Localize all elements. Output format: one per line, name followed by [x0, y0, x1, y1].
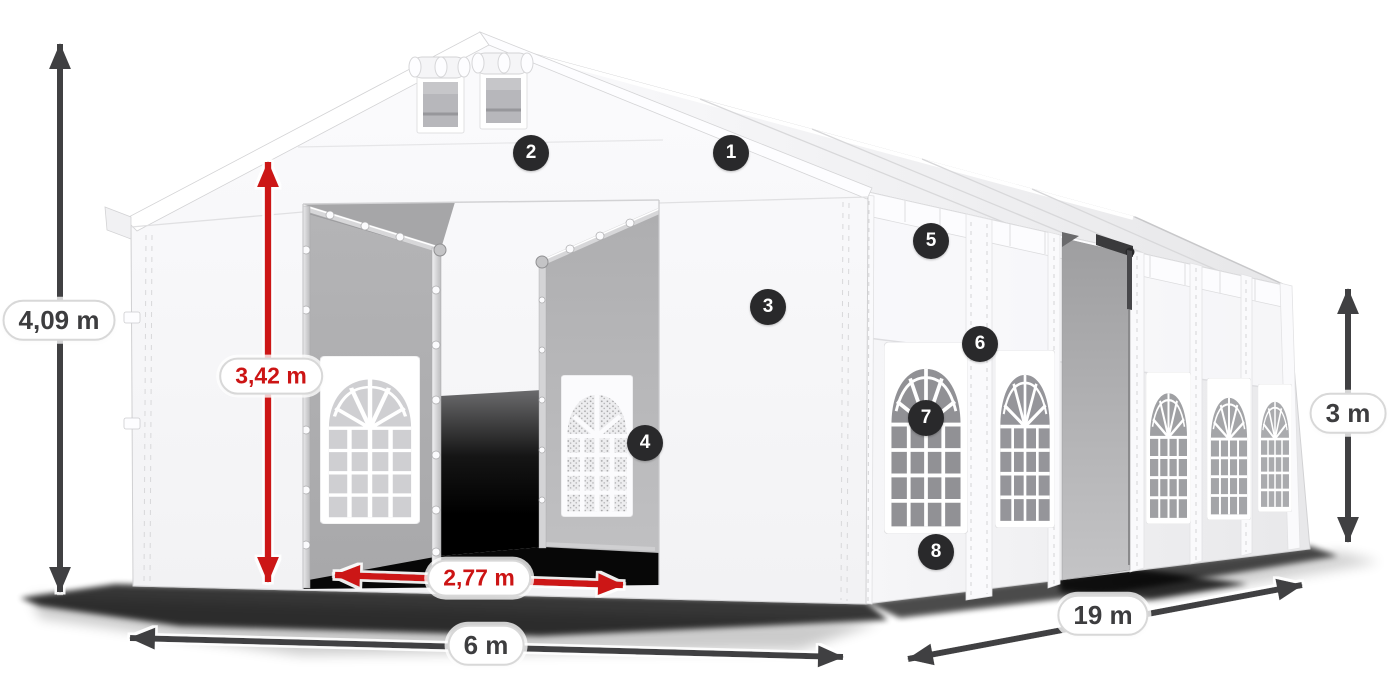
dimension-label-side-height: 3 m	[1310, 393, 1387, 434]
door-leaf-right	[542, 212, 659, 553]
side-window	[884, 342, 968, 534]
dimension-label-door-height: 3,42 m	[219, 358, 323, 395]
roof-vent-left	[409, 57, 470, 133]
dimension-label-door-width: 2,77 m	[427, 560, 531, 597]
callout-marker-4[interactable]: 4	[627, 425, 663, 461]
callout-marker-1[interactable]: 1	[713, 135, 749, 171]
dimension-label-width: 6 m	[448, 625, 525, 666]
callout-marker-3[interactable]: 3	[750, 289, 786, 325]
callout-marker-8[interactable]: 8	[918, 534, 954, 570]
side-window	[1207, 378, 1251, 520]
tent-dimension-diagram: 4,09 m 3,42 m 2,77 m 6 m 19 m 3 m 1 2 3 …	[0, 0, 1400, 700]
callout-marker-7[interactable]: 7	[908, 400, 944, 436]
callout-marker-6[interactable]: 6	[962, 326, 998, 362]
side-window	[1258, 384, 1292, 512]
door-leaf-left	[306, 213, 440, 581]
roof-vent-right	[472, 53, 533, 129]
dimension-label-length: 19 m	[1057, 595, 1148, 636]
callout-marker-5[interactable]: 5	[913, 223, 949, 259]
dimension-label-total-height: 4,09 m	[3, 300, 116, 341]
side-door-opening	[1062, 232, 1135, 580]
tent-illustration	[0, 0, 1400, 700]
side-window	[995, 350, 1055, 528]
callout-marker-2[interactable]: 2	[513, 135, 549, 171]
side-window	[1146, 372, 1191, 524]
